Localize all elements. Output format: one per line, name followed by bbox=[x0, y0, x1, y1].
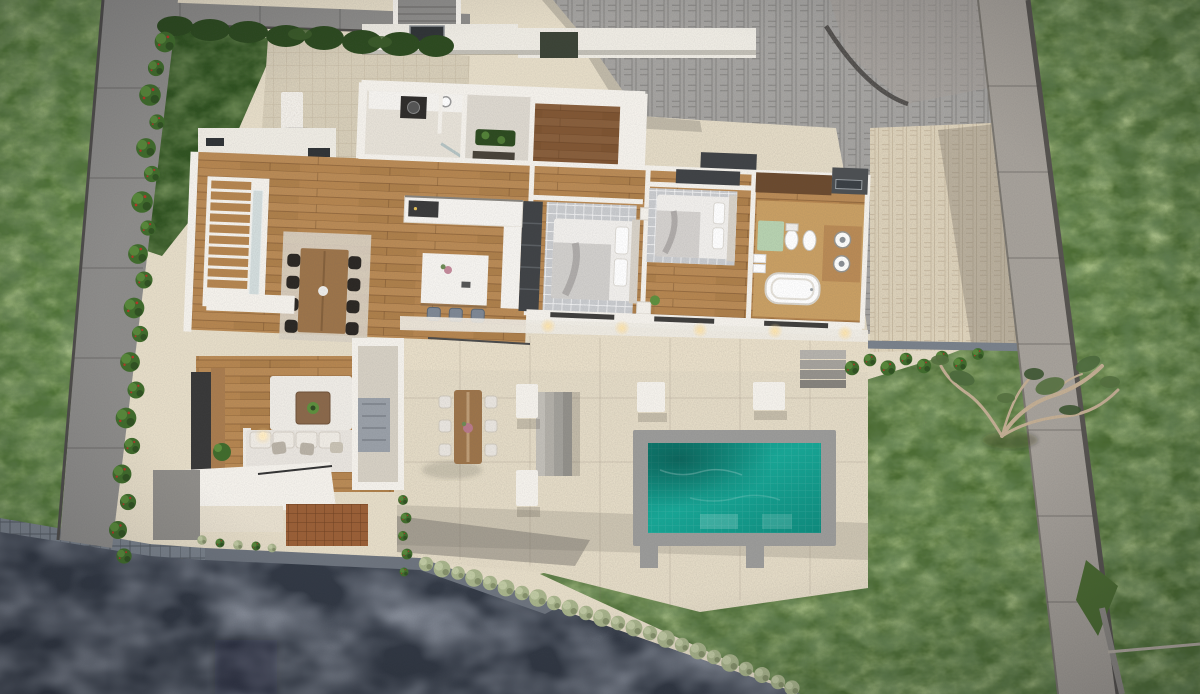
render-viewport bbox=[0, 0, 1200, 694]
villa-aerial-render bbox=[0, 0, 1200, 694]
atmosphere bbox=[0, 0, 1200, 694]
